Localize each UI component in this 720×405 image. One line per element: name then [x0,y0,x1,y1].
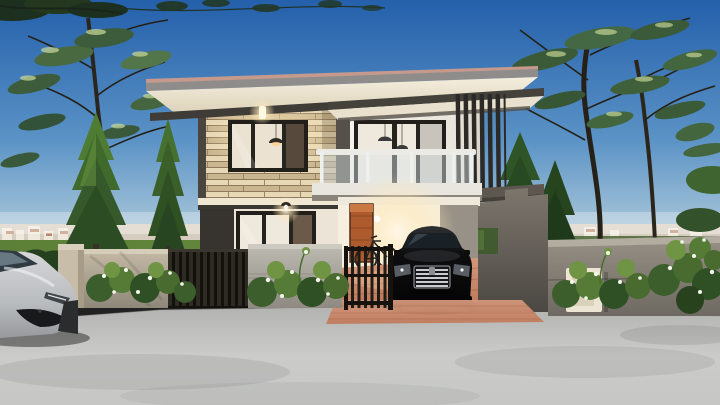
side-mirror-right [464,250,470,255]
headlight-glint [400,268,403,271]
side-mirror-left [394,250,400,255]
carport-lamp [374,216,381,223]
window-upper-left [228,120,308,172]
hood-sheen [404,250,460,262]
grille-crest-icon [429,267,435,275]
entry-gate [344,244,393,310]
ground-dark-panel [200,209,234,255]
porch-lamp [272,196,300,224]
rendering-canvas [0,0,720,405]
wall-sconce [249,99,275,125]
chrome-grille [414,266,450,288]
upper-wall-corner-dark [198,104,206,202]
headlight-glint [460,268,463,271]
bumper-vent [408,291,456,298]
house-rendering-scene [0,0,720,405]
brand-badge [38,309,42,313]
